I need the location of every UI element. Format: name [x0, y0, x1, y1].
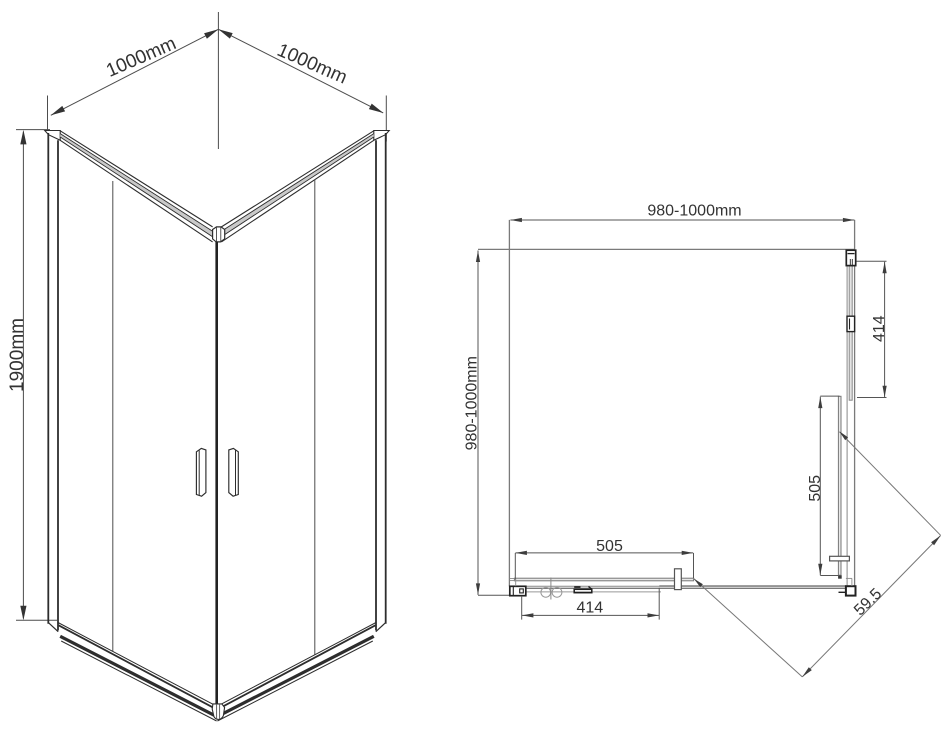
svg-text:505: 505 [807, 475, 824, 502]
svg-text:980-1000mm: 980-1000mm [463, 356, 480, 450]
svg-text:980-1000mm: 980-1000mm [647, 203, 741, 220]
svg-text:414: 414 [871, 315, 888, 342]
svg-text:414: 414 [576, 599, 603, 616]
svg-text:505: 505 [596, 538, 623, 555]
svg-text:1900mm: 1900mm [7, 318, 28, 392]
